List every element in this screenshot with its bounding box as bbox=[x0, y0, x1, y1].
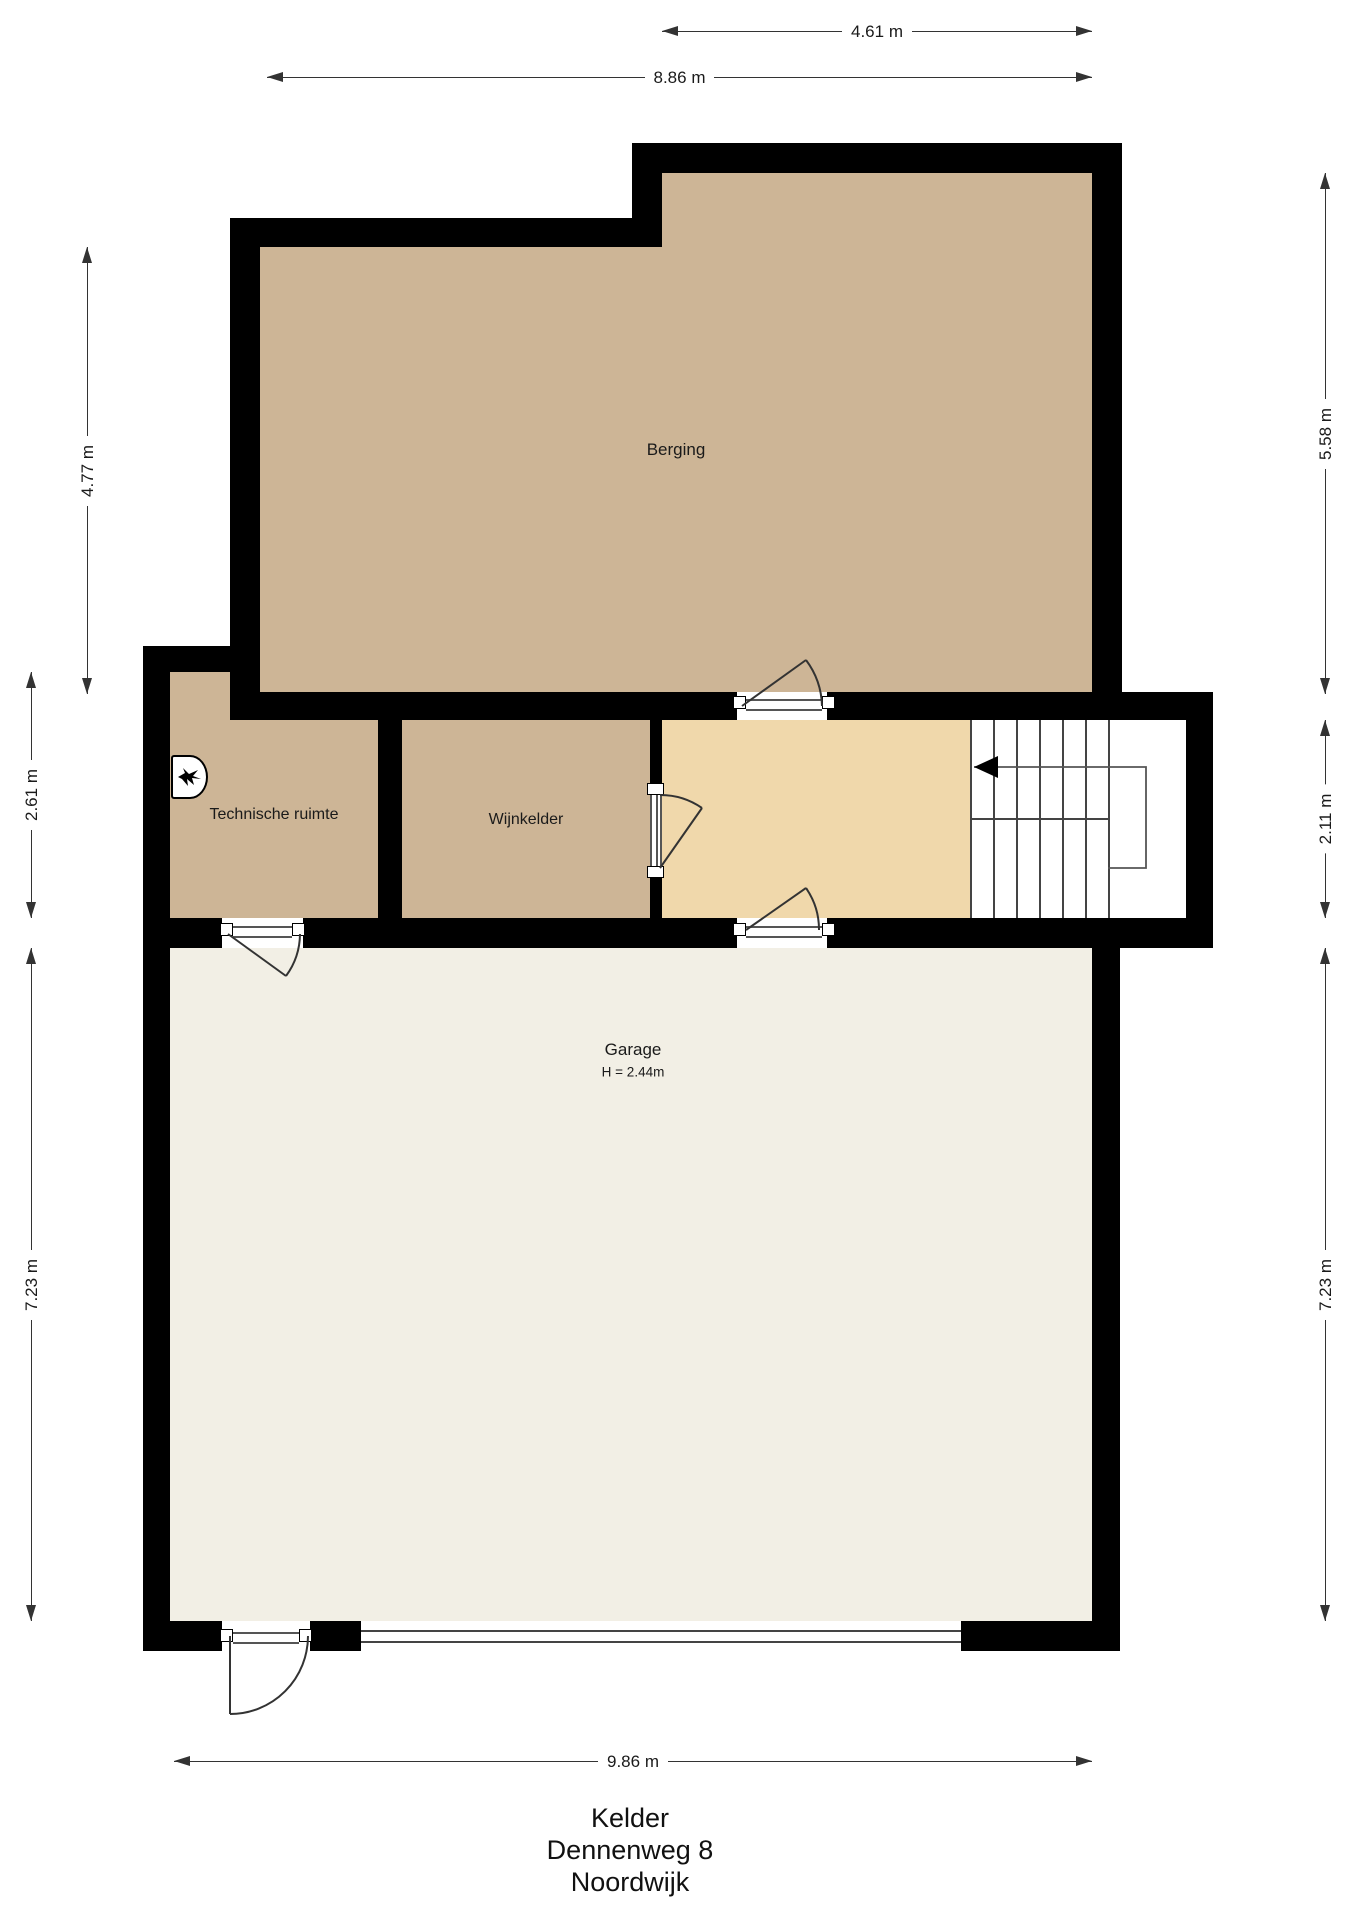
door-jamb bbox=[220, 923, 233, 936]
wall-berging-top-left bbox=[230, 218, 662, 247]
wall-garage-top-west bbox=[143, 918, 222, 948]
cv-boiler-icon bbox=[171, 755, 208, 799]
wall-berging-bottom-west bbox=[230, 692, 737, 720]
stair-flight-divider bbox=[970, 818, 1108, 820]
dimension-label: 8.86 m bbox=[645, 67, 715, 89]
wall-wijnkelder-right-upper bbox=[650, 720, 662, 785]
wall-garage-bottom-east bbox=[963, 1621, 1120, 1651]
wall-stairwell-right bbox=[1186, 692, 1213, 948]
door-jamb bbox=[733, 923, 746, 936]
wall-garage-bottom-mid bbox=[310, 1621, 359, 1651]
dimension-left-upper: 4.77 m bbox=[87, 247, 88, 694]
door-threshold-berging bbox=[746, 699, 822, 711]
room-label-garage-height: H = 2.44m bbox=[602, 1065, 665, 1080]
wall-garage-bottom-west bbox=[143, 1621, 222, 1651]
dimension-right-upper: 5.58 m bbox=[1325, 173, 1326, 694]
garage-window bbox=[359, 1621, 963, 1651]
title-street: Dennenweg 8 bbox=[547, 1834, 714, 1866]
door-jamb bbox=[292, 923, 305, 936]
door-threshold-tr-garage bbox=[233, 926, 292, 938]
dimension-right-middle: 2.11 m bbox=[1325, 720, 1326, 918]
wall-berging-top-right bbox=[632, 143, 1122, 173]
dimension-top-upper: 4.61 m bbox=[662, 31, 1092, 32]
title-block: Kelder Dennenweg 8 Noordwijk bbox=[547, 1802, 714, 1898]
door-jamb bbox=[220, 1629, 233, 1642]
wall-technische-ruimte-top bbox=[143, 646, 260, 672]
wall-tr-wijnkelder bbox=[378, 692, 402, 948]
dimension-top-lower: 8.86 m bbox=[267, 77, 1092, 78]
door-threshold-garage-exterior bbox=[233, 1632, 299, 1644]
door-wijnkelder-closed-leaf bbox=[650, 795, 662, 866]
wall-garage-top-east bbox=[827, 918, 1213, 948]
wall-berging-right bbox=[1092, 143, 1122, 720]
dimension-label: 9.86 m bbox=[598, 1751, 668, 1773]
wall-berging-bottom-east bbox=[827, 692, 1213, 720]
door-jamb bbox=[822, 696, 835, 709]
room-berging-upper-fill bbox=[260, 247, 1092, 692]
dimension-label: 4.77 m bbox=[77, 436, 99, 506]
window-glass-lines bbox=[361, 1630, 961, 1643]
dimension-label: 5.58 m bbox=[1315, 399, 1337, 469]
door-jamb bbox=[299, 1629, 312, 1642]
room-berging-right-fill bbox=[662, 173, 1092, 247]
stairwell bbox=[970, 720, 1186, 918]
room-label-wijnkelder: Wijnkelder bbox=[489, 811, 564, 829]
title-floor: Kelder bbox=[547, 1802, 714, 1834]
dimension-right-lower: 7.23 m bbox=[1325, 948, 1326, 1621]
room-label-technische-ruimte: Technische ruimte bbox=[210, 806, 339, 824]
dimension-label: 4.61 m bbox=[842, 21, 912, 43]
dimension-bottom: 9.86 m bbox=[174, 1761, 1092, 1762]
door-jamb bbox=[647, 783, 664, 795]
stair-tread-line bbox=[1108, 720, 1110, 918]
door-jamb bbox=[822, 923, 835, 936]
dimension-label: 7.23 m bbox=[1315, 1250, 1337, 1320]
wall-berging-left bbox=[230, 218, 260, 720]
flame-icon bbox=[177, 766, 203, 788]
wall-garage-right bbox=[1092, 948, 1120, 1651]
title-city: Noordwijk bbox=[547, 1866, 714, 1898]
wall-outer-left bbox=[143, 646, 170, 1651]
door-swing-garage-exterior bbox=[230, 1636, 308, 1714]
dimension-left-middle: 2.61 m bbox=[31, 672, 32, 918]
door-jamb bbox=[733, 696, 746, 709]
dimension-label: 2.11 m bbox=[1315, 785, 1337, 854]
wall-garage-top-mid bbox=[303, 918, 737, 948]
room-label-berging: Berging bbox=[647, 440, 706, 460]
dimension-label: 2.61 m bbox=[21, 760, 43, 830]
dimension-label: 7.23 m bbox=[21, 1250, 43, 1320]
dimension-left-lower: 7.23 m bbox=[31, 948, 32, 1621]
floor-plan-kelder: Berging Technische ruimte Wijnkelder Gar… bbox=[0, 0, 1358, 1920]
hall-fill bbox=[662, 720, 970, 918]
room-label-garage: Garage bbox=[605, 1040, 662, 1060]
door-threshold-hall-garage bbox=[746, 926, 822, 938]
door-jamb bbox=[647, 866, 664, 878]
